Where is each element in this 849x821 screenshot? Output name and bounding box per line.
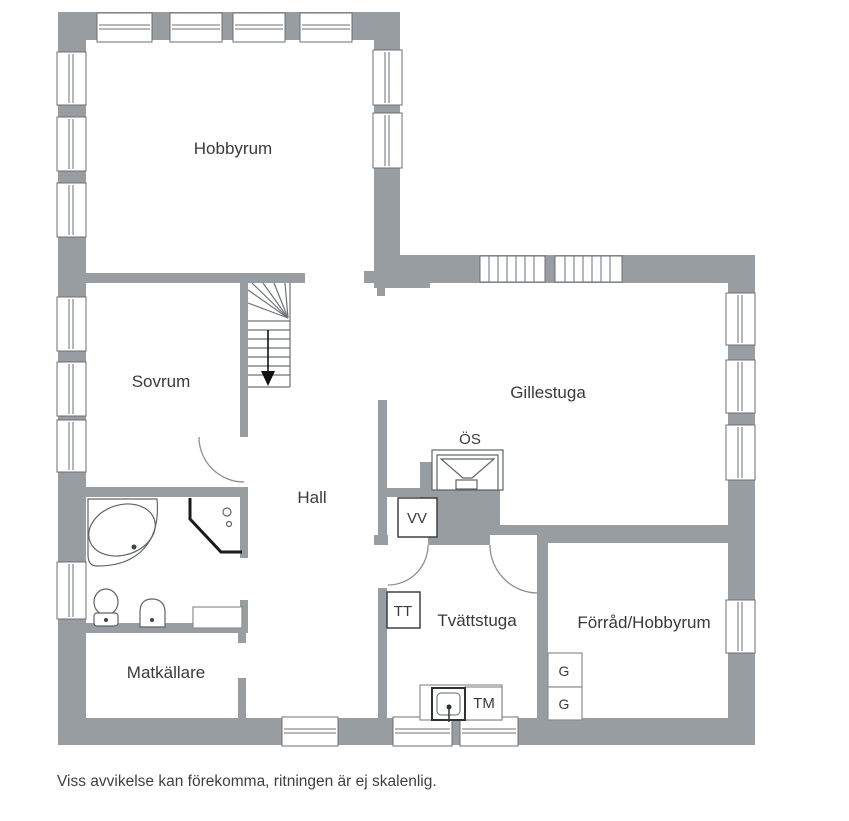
window	[373, 50, 402, 105]
floor-plan: Hobbyrum Sovrum Gillestuga Hall Matkälla…	[0, 0, 849, 760]
wall-segment	[374, 535, 388, 545]
room-label-hobbyrum: Hobbyrum	[194, 139, 272, 158]
window	[57, 297, 86, 351]
wall-segment	[537, 535, 548, 723]
window	[460, 717, 518, 746]
window	[726, 293, 755, 345]
room-label-sovrum: Sovrum	[132, 372, 191, 391]
door-arc-sovrum	[199, 437, 244, 482]
window	[57, 52, 86, 105]
window	[57, 420, 86, 472]
glass-block-window	[480, 256, 545, 282]
shower	[190, 498, 242, 552]
wall-segment	[240, 283, 248, 437]
window	[300, 13, 352, 42]
wall-segment	[364, 271, 374, 283]
wall-segment	[240, 487, 248, 558]
window	[57, 562, 86, 619]
wall-segment	[378, 588, 387, 722]
label-washer: TM	[473, 695, 495, 712]
room-label-hall: Hall	[297, 488, 326, 507]
label-wardrobe-2: G	[559, 696, 570, 712]
wall-segment	[238, 678, 246, 722]
wall-segment	[85, 487, 248, 497]
glass-block-window	[555, 256, 622, 282]
fireplace	[432, 450, 503, 490]
label-wardrobe-1: G	[559, 663, 570, 679]
bathroom-fixtures	[82, 496, 242, 628]
floor-plan-page: Hobbyrum Sovrum Gillestuga Hall Matkälla…	[0, 0, 849, 821]
window	[282, 717, 338, 746]
window	[170, 13, 222, 42]
toilet	[94, 589, 118, 626]
wall-segment	[238, 633, 246, 643]
disclaimer-text: Viss avvikelse kan förekomma, ritningen …	[57, 773, 437, 791]
room-label-matkallare: Matkällare	[127, 663, 205, 682]
window	[726, 360, 755, 413]
wc-sink	[140, 599, 165, 627]
window	[57, 183, 86, 237]
room-label-tvattstuga: Tvättstuga	[437, 611, 517, 630]
window	[373, 113, 402, 168]
wall-segment	[378, 400, 387, 543]
window	[393, 717, 452, 746]
door-arc-tvattstuga	[388, 545, 428, 585]
wall-segment	[85, 273, 305, 283]
window	[97, 13, 152, 42]
wall-segment	[387, 488, 420, 497]
wall-segment	[377, 288, 385, 296]
chimney-step	[420, 462, 432, 488]
label-dryer: TT	[394, 603, 412, 620]
label-water-heater: VV	[407, 510, 427, 527]
stair-down-arrow	[261, 371, 275, 386]
bath-bench	[193, 607, 242, 628]
window	[726, 425, 755, 480]
window	[57, 117, 86, 171]
room-label-gillestuga: Gillestuga	[510, 383, 586, 402]
wall-segment	[548, 533, 728, 543]
window	[233, 13, 285, 42]
staircase	[248, 283, 290, 387]
window	[57, 362, 86, 416]
door-arc-forrad	[490, 545, 538, 593]
label-fireplace: ÖS	[459, 430, 481, 448]
bathtub	[82, 496, 162, 566]
window	[726, 600, 755, 653]
laundry-sink	[432, 688, 465, 722]
room-label-forrad-hobbyrum: Förråd/Hobbyrum	[577, 613, 710, 632]
